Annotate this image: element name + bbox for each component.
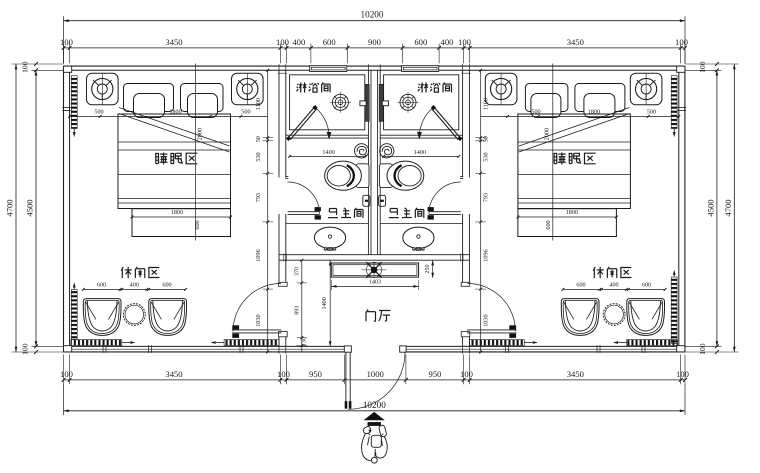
svg-text:893: 893 [294,306,300,315]
svg-text:1800: 1800 [566,209,578,216]
svg-text:1400: 1400 [321,297,328,309]
svg-text:100: 100 [276,37,289,47]
svg-text:600: 600 [642,281,651,288]
svg-text:3450: 3450 [567,369,584,379]
svg-text:4700: 4700 [5,199,15,216]
svg-text:100: 100 [698,343,707,355]
svg-text:950: 950 [309,369,322,379]
svg-text:1096: 1096 [482,249,489,261]
svg-text:100: 100 [60,369,73,379]
svg-text:1400: 1400 [414,149,426,156]
svg-text:10200: 10200 [361,10,384,20]
svg-text:2000: 2000 [544,128,551,140]
svg-text:100: 100 [21,343,30,355]
svg-text:2000: 2000 [196,128,203,140]
svg-text:1030: 1030 [482,314,489,326]
svg-text:530: 530 [255,152,262,161]
svg-text:100: 100 [675,37,688,47]
svg-text:500: 500 [531,108,540,115]
svg-text:500: 500 [241,108,250,115]
svg-text:1403: 1403 [369,279,381,286]
svg-text:100: 100 [21,61,30,73]
svg-text:250: 250 [425,265,431,274]
svg-text:4500: 4500 [705,199,715,216]
svg-text:600: 600 [162,281,171,288]
svg-text:500: 500 [94,108,103,115]
svg-text:1000: 1000 [367,369,384,379]
svg-text:100: 100 [676,369,689,379]
svg-text:400: 400 [130,281,139,288]
svg-text:600: 600 [97,281,106,288]
svg-text:100: 100 [277,369,290,379]
svg-text:950: 950 [428,369,441,379]
svg-text:50: 50 [255,136,262,142]
svg-text:500: 500 [647,108,656,115]
svg-text:370: 370 [294,267,300,276]
svg-text:100: 100 [60,37,73,47]
svg-text:793: 793 [482,193,489,202]
svg-text:900: 900 [368,37,381,47]
svg-text:130: 130 [301,337,307,346]
svg-text:530: 530 [482,152,489,161]
svg-text:4700: 4700 [723,199,733,216]
svg-text:4500: 4500 [25,199,35,216]
svg-text:600: 600 [414,37,427,47]
svg-text:100: 100 [460,369,473,379]
svg-text:793: 793 [255,193,262,202]
svg-text:10200: 10200 [363,400,386,410]
svg-text:1030: 1030 [255,314,262,326]
svg-text:3450: 3450 [165,37,182,47]
svg-text:50: 50 [482,136,489,142]
svg-text:3450: 3450 [567,37,584,47]
svg-text:3450: 3450 [165,369,182,379]
svg-text:600: 600 [194,220,201,229]
svg-text:1096: 1096 [255,249,262,261]
svg-text:1800: 1800 [588,108,600,115]
svg-text:400: 400 [609,281,618,288]
svg-text:400: 400 [441,37,454,47]
svg-text:600: 600 [323,37,336,47]
svg-text:100: 100 [698,61,707,73]
svg-text:1800: 1800 [171,209,183,216]
svg-text:1400: 1400 [322,149,334,156]
svg-text:600: 600 [545,220,552,229]
svg-text:600: 600 [576,281,585,288]
svg-text:1800: 1800 [169,108,181,115]
svg-text:400: 400 [292,37,305,47]
svg-text:100: 100 [458,37,471,47]
